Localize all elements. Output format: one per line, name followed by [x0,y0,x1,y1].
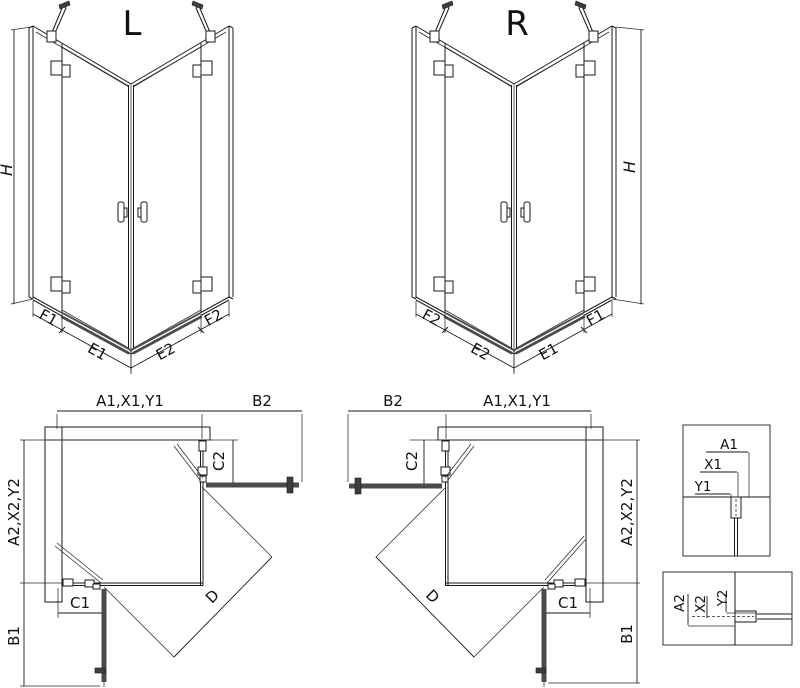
dim-label-e2: E2 [468,339,493,364]
dim-label-e1: E1 [85,339,110,364]
view-title-right: R [505,4,529,44]
door-handle-icon [536,668,546,673]
plan-view-right: B2 A1,X1,Y1 A2,X2,Y2 B1 C2 C1 D [348,392,640,687]
dim-label-f2: F2 [419,305,444,330]
dim-label-a1: A1 [720,437,738,453]
dim-label-a2x2y2: A2,X2,Y2 [618,478,636,546]
wall-bracket-icon [199,441,206,451]
dim-label-b2: B2 [252,392,272,410]
dim-label-c1: C1 [558,594,578,612]
wall-bracket-icon [442,441,449,451]
wall-right [586,427,603,602]
dim-label-a2x2y2: A2,X2,Y2 [5,478,23,546]
dim-label-c2: C2 [403,451,421,471]
glass-section [735,518,738,556]
dim-label-d: D [202,586,223,607]
dim-label-x1: X1 [704,457,722,473]
dim-label-f2: F2 [201,305,226,330]
shower-enclosure-drawing: L H F1 E1 E2 F2 R H F2 E2 E1 F1 [0,0,800,688]
dim-label-b2: B2 [383,392,403,410]
dim-label-b1: B1 [618,624,636,644]
swing-arrow [448,446,474,480]
dim-label-h: H [620,161,639,173]
swing-arrow [547,539,586,583]
glass-walls-closed [445,440,586,586]
swing-arrow [174,446,200,480]
view-3d-left: L H F1 E1 E2 F2 [0,1,233,374]
dim-label-y2: Y2 [715,590,731,608]
dim-label-b1: B1 [5,626,23,646]
dim-label-a1x1y1: A1,X1,Y1 [483,392,551,410]
dim-label-d: D [422,586,443,607]
wall-left [45,427,62,602]
door-handle-icon [95,668,105,673]
dim-label-c1: C1 [70,594,90,612]
wall-top [438,427,603,440]
dim-label-a1x1y1: A1,X1,Y1 [96,392,164,410]
wall-bracket-icon [63,579,73,586]
dim-label-y1: Y1 [694,479,712,495]
dim-label-f1: F1 [583,305,608,330]
door-handle-icon [287,477,293,493]
detail-box-wall-profile-top: A1 X1 Y1 [683,425,770,556]
dim-label-a2: A2 [672,594,688,612]
wall-bracket-icon [575,579,585,586]
dim-label-e1: E1 [536,339,561,364]
dim-label-e2: E2 [153,339,178,364]
door-handle-icon [355,478,361,494]
dim-label-h: H [0,164,16,176]
glass-section [757,614,792,619]
view-title-left: L [123,4,142,44]
view-3d-right: R H F2 E2 E1 F1 [412,1,644,374]
dim-label-c2: C2 [210,451,228,471]
detail-box-wall-profile-bottom: A2 X2 Y2 [663,572,792,645]
dim-label-f1: F1 [36,305,61,330]
wall-top [45,427,210,440]
plan-view-left: A1,X1,Y1 B2 A2,X2,Y2 B1 C2 C1 D [5,392,302,687]
technical-drawing-page: L H F1 E1 E2 F2 R H F2 E2 E1 F1 [0,0,800,688]
